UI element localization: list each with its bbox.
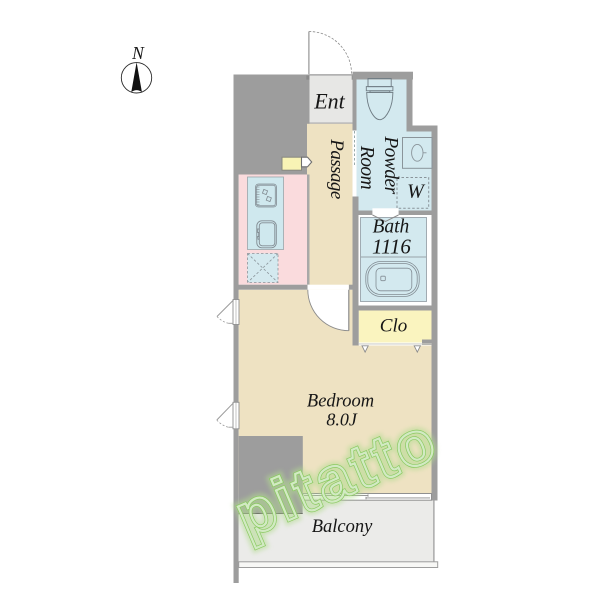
svg-text:8.0J: 8.0J	[326, 409, 358, 429]
svg-text:1116: 1116	[372, 235, 411, 259]
svg-text:W: W	[407, 181, 426, 203]
svg-text:N: N	[131, 43, 145, 63]
svg-text:Room: Room	[356, 145, 377, 190]
svg-text:Powder: Powder	[380, 135, 401, 194]
svg-text:Ent: Ent	[313, 89, 345, 114]
svg-text:Passage: Passage	[326, 138, 347, 199]
svg-text:Clo: Clo	[380, 316, 407, 337]
